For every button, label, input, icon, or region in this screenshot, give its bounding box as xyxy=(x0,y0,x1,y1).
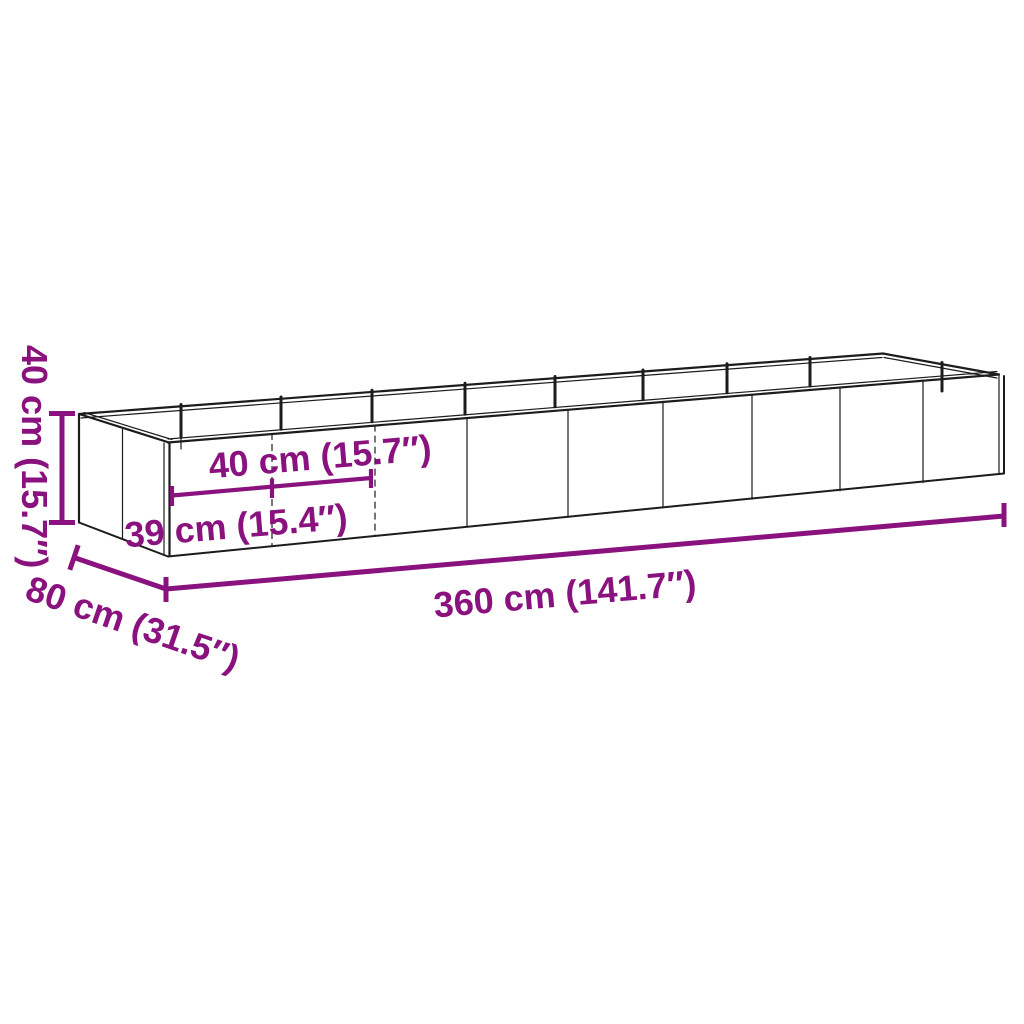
end-panel-dimension-label: 39 cm (15.4″) xyxy=(123,496,349,556)
planter-dimension-diagram: 40 cm (15.7″) 40 cm (15.7″) 39 cm (15.4″… xyxy=(0,0,1024,1024)
dimension-diagram-canvas: 40 cm (15.7″) 40 cm (15.7″) 39 cm (15.4″… xyxy=(0,0,1024,1024)
length-dimension-label: 360 cm (141.7″) xyxy=(432,562,698,626)
height-dimension-label: 40 cm (15.7″) xyxy=(14,345,55,568)
dimension-labels: 40 cm (15.7″) 40 cm (15.7″) 39 cm (15.4″… xyxy=(14,345,698,679)
